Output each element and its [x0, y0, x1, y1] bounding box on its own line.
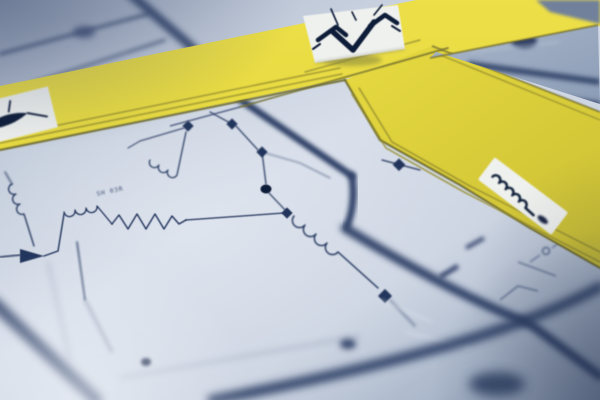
bottom-left-fog: [0, 250, 250, 400]
top-left-shade: [0, 0, 300, 150]
photo-canvas: SH 03R: [0, 0, 600, 400]
right-edge-shade: [470, 150, 600, 400]
circuit-schematic-photo: SH 03R: [0, 0, 600, 400]
blurred-component-blob: [340, 339, 356, 349]
junction-blob-icon: [261, 185, 272, 194]
